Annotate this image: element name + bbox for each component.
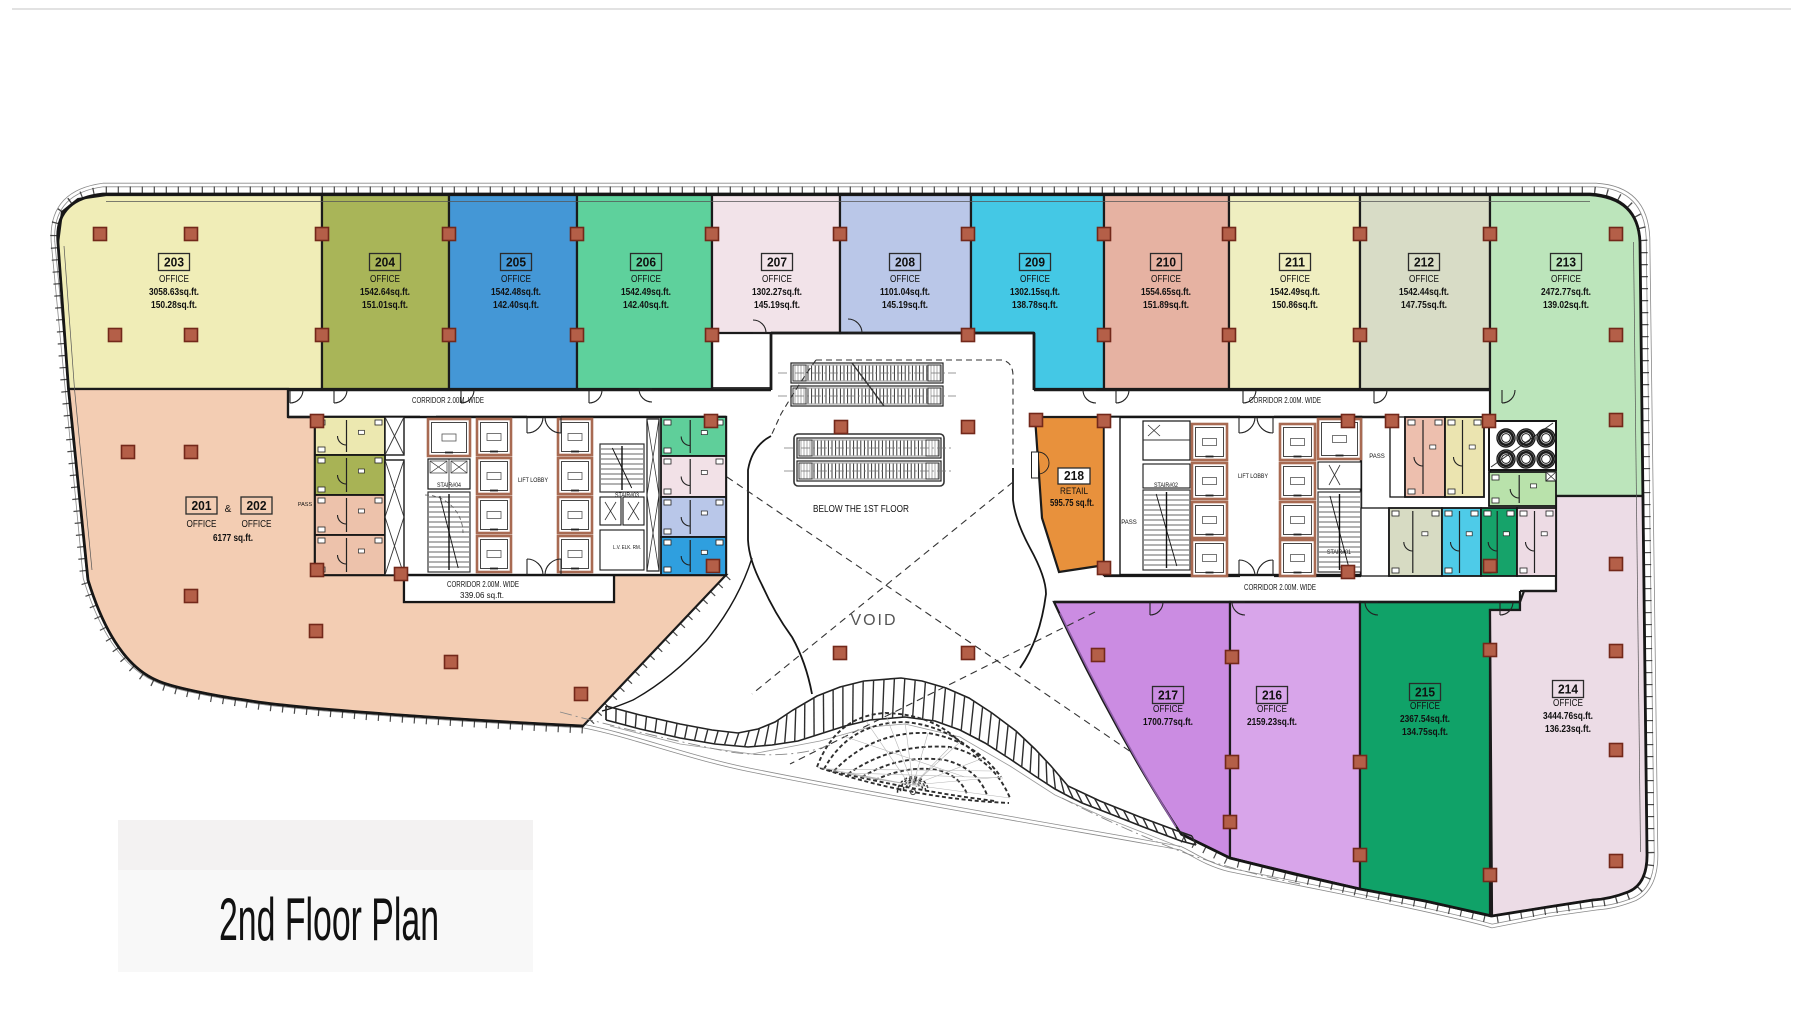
svg-text:145.19sq.ft.: 145.19sq.ft. [882,299,928,311]
svg-text:216: 216 [1262,689,1282,703]
svg-text:OFFICE: OFFICE [1410,701,1440,712]
svg-text:OFFICE: OFFICE [1280,274,1310,285]
svg-text:CORRIDOR 2.00M. WIDE: CORRIDOR 2.00M. WIDE [1249,396,1321,405]
svg-text:214: 214 [1558,683,1578,697]
svg-text:OFFICE: OFFICE [242,519,272,530]
svg-text:595.75 sq.ft.: 595.75 sq.ft. [1050,498,1094,509]
svg-text:204: 204 [375,256,395,270]
svg-text:150.86sq.ft.: 150.86sq.ft. [1272,299,1318,311]
svg-text:CORRIDOR 2.00M. WIDE: CORRIDOR 2.00M. WIDE [412,396,484,405]
svg-text:CORRIDOR 2.00M. WIDE: CORRIDOR 2.00M. WIDE [1244,583,1316,592]
svg-text:218: 218 [1064,469,1084,483]
svg-text:OFFICE: OFFICE [501,274,531,285]
svg-text:217: 217 [1158,689,1178,703]
svg-text:STAIR#02: STAIR#02 [1154,483,1179,489]
svg-text:2159.23sq.ft.: 2159.23sq.ft. [1247,716,1297,728]
svg-text:3444.76sq.ft.: 3444.76sq.ft. [1543,710,1593,722]
svg-text:OFFICE: OFFICE [1551,274,1581,285]
svg-text:3058.63sq.ft.: 3058.63sq.ft. [149,286,199,298]
svg-text:147.75sq.ft.: 147.75sq.ft. [1401,299,1447,311]
svg-text:L.V. ELK. RM.: L.V. ELK. RM. [613,545,641,551]
svg-text:209: 209 [1025,256,1045,270]
svg-text:2472.77sq.ft.: 2472.77sq.ft. [1541,286,1591,298]
svg-text:151.01sq.ft.: 151.01sq.ft. [362,299,408,311]
svg-text:OFFICE: OFFICE [1409,274,1439,285]
svg-text:207: 207 [767,256,787,270]
svg-text:1542.49sq.ft.: 1542.49sq.ft. [1270,286,1320,298]
svg-text:203: 203 [164,256,184,270]
svg-text:OFFICE: OFFICE [187,519,217,530]
svg-text:OFFICE: OFFICE [762,274,792,285]
svg-text:150.28sq.ft.: 150.28sq.ft. [151,299,197,311]
svg-text:STAIR#01: STAIR#01 [1327,550,1352,556]
svg-text:138.78sq.ft.: 138.78sq.ft. [1012,299,1058,311]
svg-text:LIFT LOBBY: LIFT LOBBY [518,477,549,484]
svg-text:211: 211 [1285,256,1305,270]
svg-text:208: 208 [895,256,915,270]
svg-text:136.23sq.ft.: 136.23sq.ft. [1545,723,1591,735]
svg-text:1542.64sq.ft.: 1542.64sq.ft. [360,286,410,298]
svg-text:139.02sq.ft.: 139.02sq.ft. [1543,299,1589,311]
svg-text:1302.27sq.ft.: 1302.27sq.ft. [752,286,802,298]
svg-text:STAIR#03: STAIR#03 [615,493,640,499]
svg-text:PASS: PASS [298,502,313,508]
svg-text:145.19sq.ft.: 145.19sq.ft. [754,299,800,311]
svg-text:210: 210 [1156,256,1176,270]
svg-text:1542.49sq.ft.: 1542.49sq.ft. [621,286,671,298]
svg-text:LIFT LOBBY: LIFT LOBBY [1238,473,1269,480]
svg-text:1554.65sq.ft.: 1554.65sq.ft. [1141,286,1191,298]
svg-text:OFFICE: OFFICE [159,274,189,285]
svg-text:2nd Floor Plan: 2nd Floor Plan [219,886,439,953]
svg-text:201: 201 [192,499,212,513]
svg-text:206: 206 [636,256,656,270]
svg-text:OFFICE: OFFICE [1151,274,1181,285]
svg-text:142.40sq.ft.: 142.40sq.ft. [623,299,669,311]
svg-text:OFFICE: OFFICE [1153,704,1183,715]
svg-text:215: 215 [1415,686,1435,700]
svg-text:BELOW THE 1ST FLOOR: BELOW THE 1ST FLOOR [813,504,909,515]
svg-text:OFFICE: OFFICE [1257,704,1287,715]
svg-text:205: 205 [506,256,526,270]
svg-text:142.40sq.ft.: 142.40sq.ft. [493,299,539,311]
svg-text:STAIR#04: STAIR#04 [437,483,462,489]
svg-text:VOID: VOID [850,612,897,629]
svg-text:1542.44sq.ft.: 1542.44sq.ft. [1399,286,1449,298]
svg-text:1302.15sq.ft.: 1302.15sq.ft. [1010,286,1060,298]
svg-text:&: & [225,504,232,515]
svg-text:134.75sq.ft.: 134.75sq.ft. [1402,726,1448,738]
svg-text:PASS: PASS [1369,454,1385,460]
svg-text:1700.77sq.ft.: 1700.77sq.ft. [1143,716,1193,728]
svg-text:339.06 sq.ft.: 339.06 sq.ft. [460,591,504,600]
svg-text:OFFICE: OFFICE [370,274,400,285]
svg-text:OFFICE: OFFICE [631,274,661,285]
svg-text:OFFICE: OFFICE [1553,698,1583,709]
svg-text:2367.54sq.ft.: 2367.54sq.ft. [1400,713,1450,725]
svg-text:213: 213 [1556,256,1576,270]
svg-text:202: 202 [247,499,267,513]
svg-text:OFFICE: OFFICE [890,274,920,285]
svg-text:RETAIL: RETAIL [1060,486,1088,497]
svg-text:OFFICE: OFFICE [1020,274,1050,285]
svg-text:PASS: PASS [1121,520,1137,526]
svg-text:212: 212 [1414,256,1434,270]
svg-text:1542.48sq.ft.: 1542.48sq.ft. [491,286,541,298]
svg-text:151.89sq.ft.: 151.89sq.ft. [1143,299,1189,311]
svg-text:CORRIDOR 2.00M. WIDE: CORRIDOR 2.00M. WIDE [447,580,519,589]
svg-text:1101.04sq.ft.: 1101.04sq.ft. [880,286,930,298]
svg-text:6177 sq.ft.: 6177 sq.ft. [213,533,253,544]
